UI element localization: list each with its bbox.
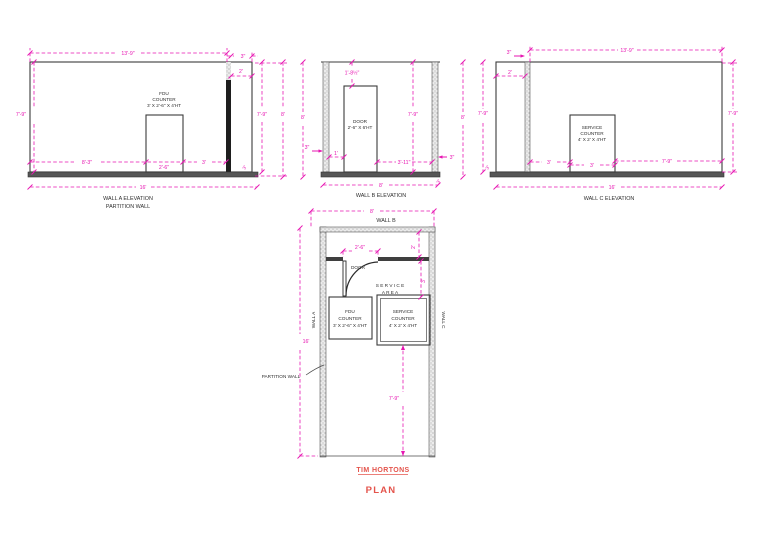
side-wall-left bbox=[323, 62, 329, 172]
elevation-wall-b: 1'-8½" 8' 7'-9" 3" 1' 3'-11" 3" 8' 3" DO… bbox=[301, 60, 455, 200]
dim-door-width: 2'-6" bbox=[355, 245, 365, 251]
dim-ticks bbox=[301, 60, 448, 188]
dim-height-left: 7'-9" bbox=[16, 112, 26, 118]
dim-base: 3" bbox=[435, 178, 441, 184]
service-counter-label: 4' X 2' X 4'HT bbox=[389, 323, 417, 328]
door-label: 2'-6" X 6'HT bbox=[348, 125, 373, 130]
architectural-drawing-sheet: 13'-9" 3" 2' 7'-9" 7'-9" 8' 8'-3" 2'-6" … bbox=[0, 0, 768, 543]
drawing-canvas: 13'-9" 3" 2' 7'-9" 7'-9" 8' 8'-3" 2'-6" … bbox=[0, 0, 768, 543]
dim-width-top: 13'-9" bbox=[620, 48, 633, 54]
project-title: TIM HORTONS bbox=[356, 467, 409, 474]
view-subtitle: PARTITION WALL bbox=[106, 204, 150, 210]
wall-a-label: WALL A bbox=[311, 311, 316, 328]
fdu-counter-label: 3' X 2'-6" X 4'HT bbox=[147, 103, 181, 108]
dim-ticks bbox=[461, 48, 736, 190]
dim-width-overall: 16' bbox=[609, 185, 616, 191]
side-wall-right bbox=[432, 62, 438, 172]
floor-slab bbox=[28, 172, 258, 177]
elevation-wall-c: 13'-9" 3" 2' 8' 7'-9" 7'-9" 3' 3' 7'-9" … bbox=[461, 46, 739, 202]
service-counter-label: 4' X 2' X 4'HT bbox=[578, 137, 606, 142]
floor-slab bbox=[321, 172, 440, 177]
dim-offset: 2' bbox=[239, 69, 243, 75]
dim-seg-left: 8'-3" bbox=[82, 160, 92, 166]
door-label: DOOR bbox=[351, 265, 366, 270]
dim-base: 3" bbox=[241, 164, 247, 170]
room-outline bbox=[30, 62, 252, 172]
dim-seg-c: 7'-9" bbox=[662, 159, 672, 165]
dim-height-left: 7'-9" bbox=[478, 111, 488, 117]
view-title: WALL B ELEVATION bbox=[356, 193, 406, 199]
wall-b-plan bbox=[320, 227, 435, 232]
dim-height-right: 7'-9" bbox=[257, 112, 267, 118]
dim-arrows bbox=[401, 345, 405, 456]
dim-lines bbox=[463, 46, 737, 187]
wall-c-label: WALL C bbox=[441, 311, 446, 329]
fdu-counter-label: FDU bbox=[345, 309, 355, 314]
dim-service-depth: 3' bbox=[421, 279, 427, 283]
dim-seg-b: 3' bbox=[590, 163, 594, 169]
wall-b-label: WALL B bbox=[376, 218, 396, 224]
dim-seg-a: 3' bbox=[547, 160, 551, 166]
dim-seg-right: 3' bbox=[202, 160, 206, 166]
fdu-counter-label: COUNTER bbox=[152, 97, 176, 102]
dim-plan-width: 8' bbox=[370, 209, 374, 215]
view-title: WALL C ELEVATION bbox=[584, 196, 635, 202]
dim-arrows bbox=[521, 54, 526, 57]
dim-partition-thickness: 3" bbox=[507, 50, 512, 56]
door-leaf bbox=[343, 261, 346, 296]
dim-partition-thickness: 3" bbox=[241, 54, 246, 60]
dim-seg-left: 1' bbox=[334, 151, 338, 157]
partition-wall-label: PARTITION WALL bbox=[262, 374, 301, 379]
dim-offset: 2' bbox=[508, 70, 512, 76]
dim-width: 8' bbox=[379, 183, 383, 189]
dim-seg-counter: 2'-6" bbox=[159, 165, 169, 171]
dim-height-left: 8' bbox=[301, 115, 305, 121]
dim-width-overall: 16' bbox=[140, 185, 147, 191]
elevation-wall-a: 13'-9" 3" 2' 7'-9" 7'-9" 8' 8'-3" 2'-6" … bbox=[16, 48, 287, 210]
dim-wall-right: 3" bbox=[450, 155, 455, 161]
sheet-title: PLAN bbox=[366, 485, 397, 496]
dim-door-head: 1'-8½" bbox=[345, 70, 360, 77]
door-label: DOOR bbox=[353, 119, 368, 124]
service-area-label: S E R V I C E bbox=[376, 283, 404, 288]
partition-wall-bar bbox=[525, 62, 530, 172]
service-counter-label: SERVICE bbox=[582, 125, 603, 130]
wall-a-plan bbox=[320, 227, 326, 457]
fdu-counter-box bbox=[146, 115, 183, 172]
service-counter-label: SERVICE bbox=[393, 309, 414, 314]
service-area-label: A R E A bbox=[382, 290, 399, 295]
view-title: WALL A ELEVATION bbox=[103, 196, 153, 202]
interior-wall-left bbox=[326, 257, 343, 261]
fdu-counter-label: 3' X 2'-6" X 4'HT bbox=[333, 323, 367, 328]
service-counter-label: COUNTER bbox=[580, 131, 604, 136]
dim-height-right: 7'-9" bbox=[408, 112, 418, 118]
dim-seg-right: 3'-11" bbox=[398, 160, 411, 166]
dim-clear-depth: 7'-9" bbox=[389, 396, 399, 402]
dim-height-right: 7'-9" bbox=[728, 111, 738, 117]
dim-offset: 2' bbox=[411, 245, 417, 249]
dim-width-top: 13'-9" bbox=[121, 51, 134, 57]
service-counter-label: COUNTER bbox=[391, 316, 415, 321]
dim-height-outer: 8' bbox=[461, 115, 465, 121]
dim-base: 3" bbox=[484, 164, 490, 170]
dim-plan-length: 16' bbox=[303, 339, 310, 345]
floor-plan: 8' WALL B 2'-6" DOOR 2' 3' S E R V I C E… bbox=[262, 209, 446, 459]
floor-slab bbox=[490, 172, 724, 177]
fdu-counter-label: COUNTER bbox=[338, 316, 362, 321]
fdu-counter-label: FDU bbox=[159, 91, 169, 96]
title-block: TIM HORTONS PLAN bbox=[356, 467, 409, 496]
dim-height-overall: 8' bbox=[281, 112, 285, 118]
dim-wall-left: 3" bbox=[305, 145, 310, 151]
